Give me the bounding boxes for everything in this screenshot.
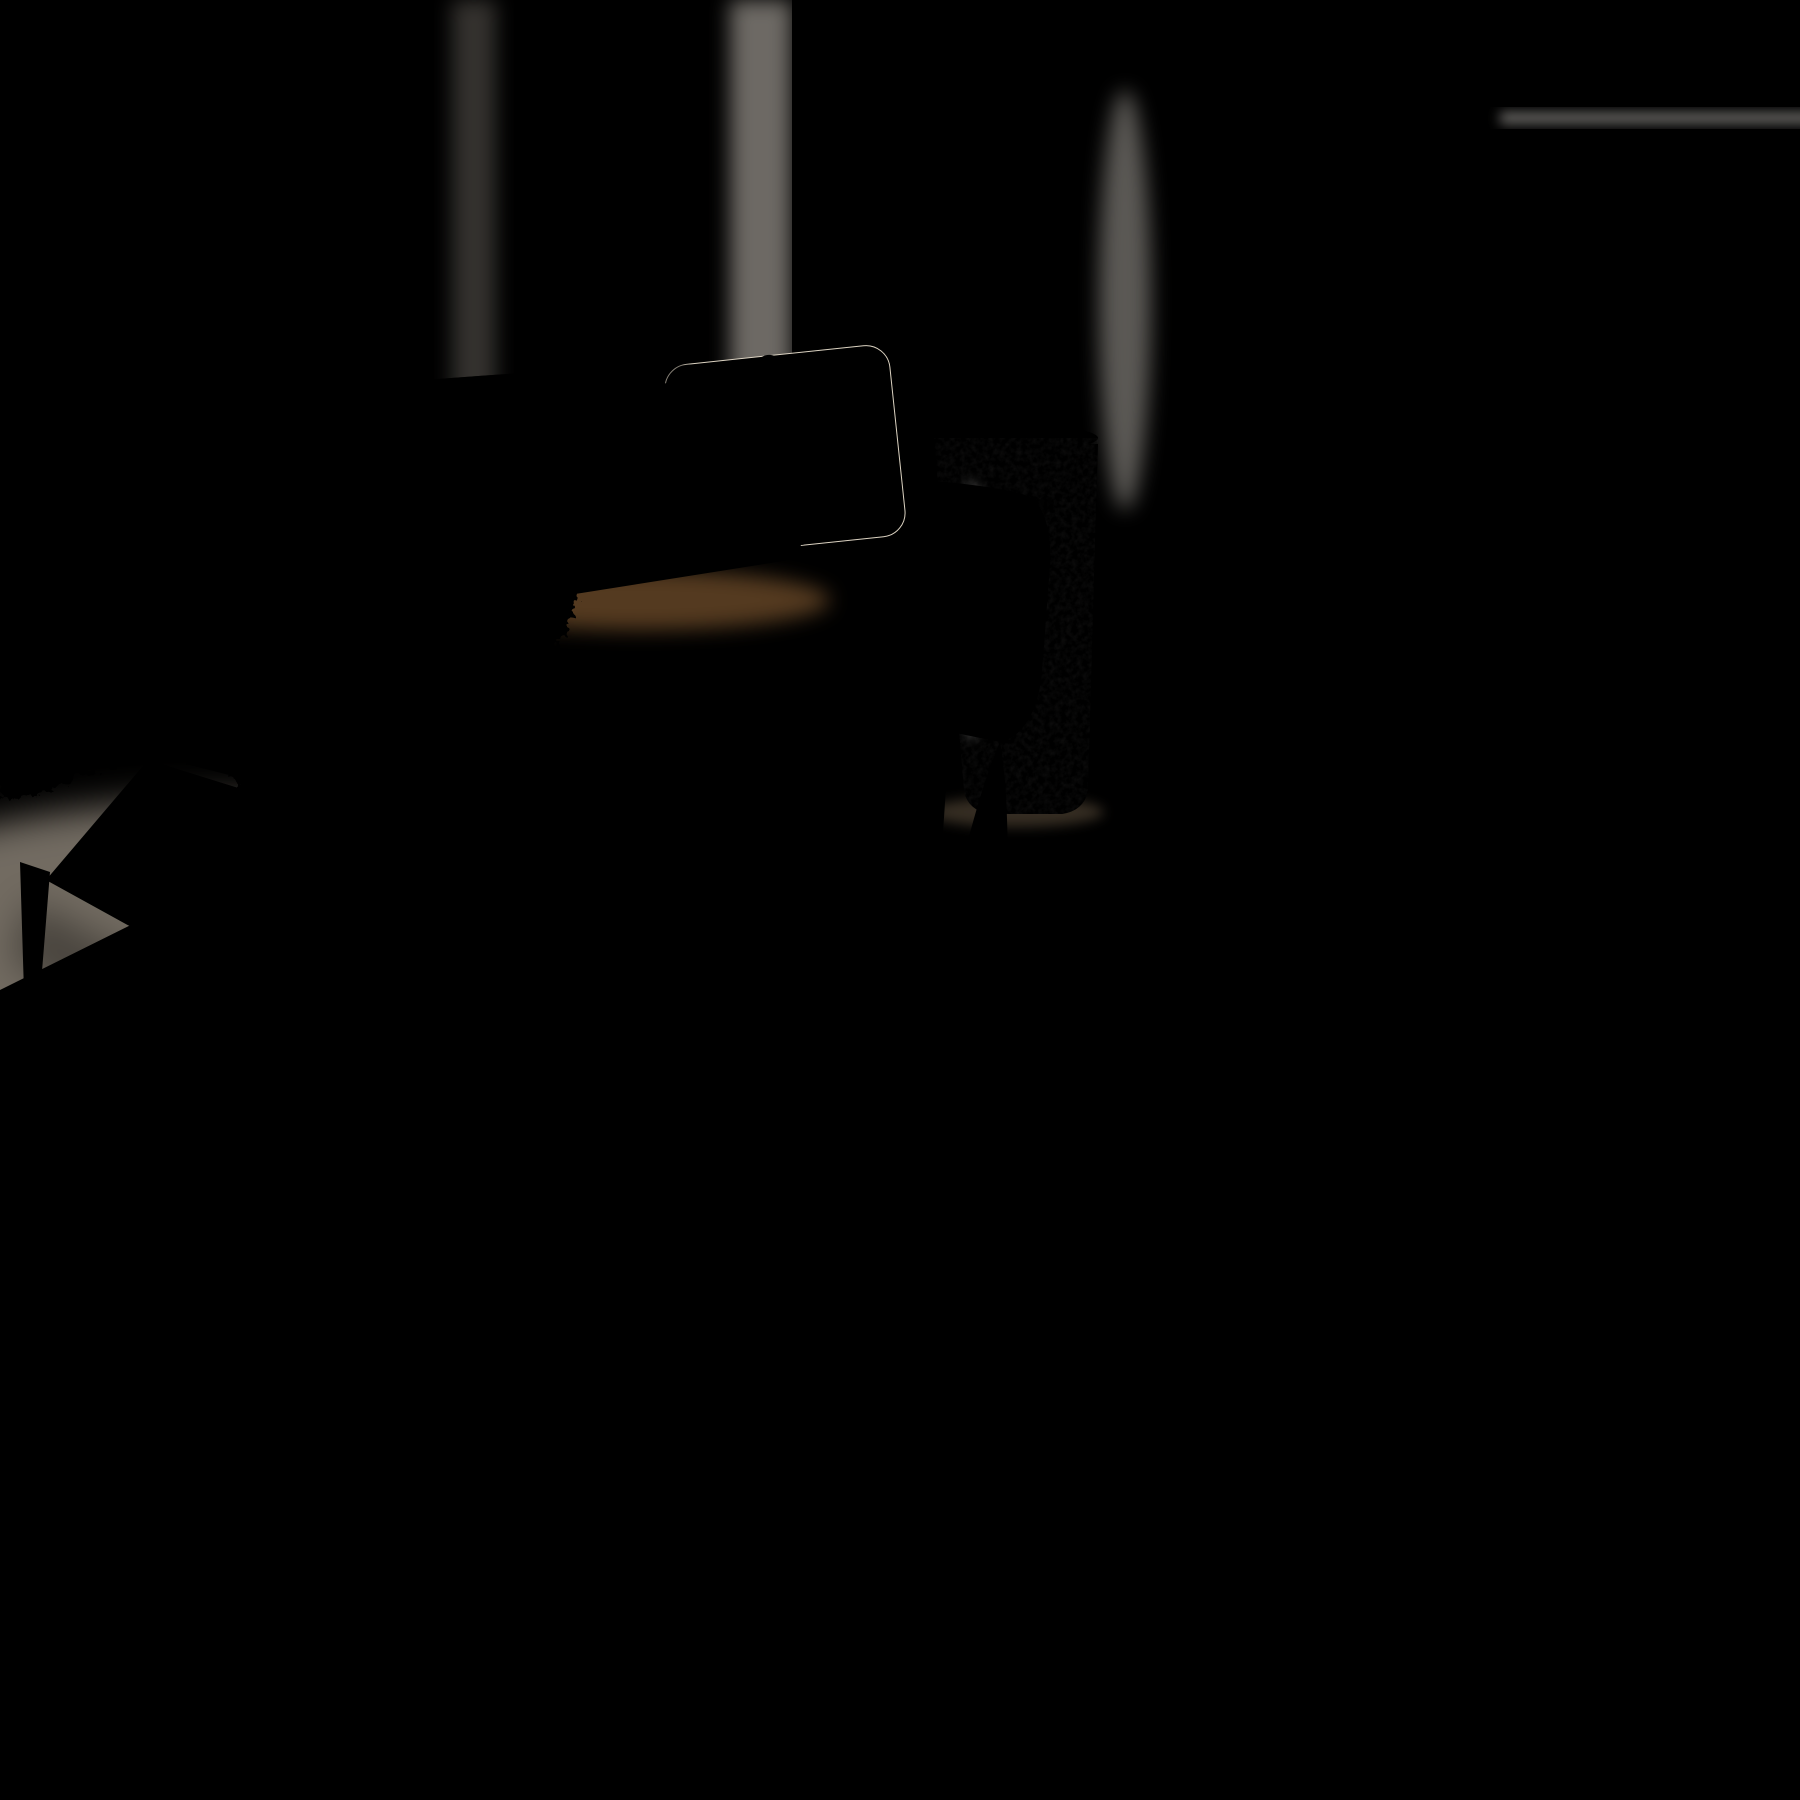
cactus-wall-shadow bbox=[1099, 90, 1151, 510]
painting-slate-blob2 bbox=[1486, 36, 1610, 108]
living-room-photo bbox=[0, 0, 1800, 1800]
window-frame-hint bbox=[452, 0, 496, 420]
painting-wall-shadow bbox=[1500, 112, 1800, 124]
scene-canvas bbox=[0, 0, 1800, 1800]
painting-bottom-edge bbox=[1497, 106, 1800, 112]
abstract-painting bbox=[1486, 0, 1800, 124]
